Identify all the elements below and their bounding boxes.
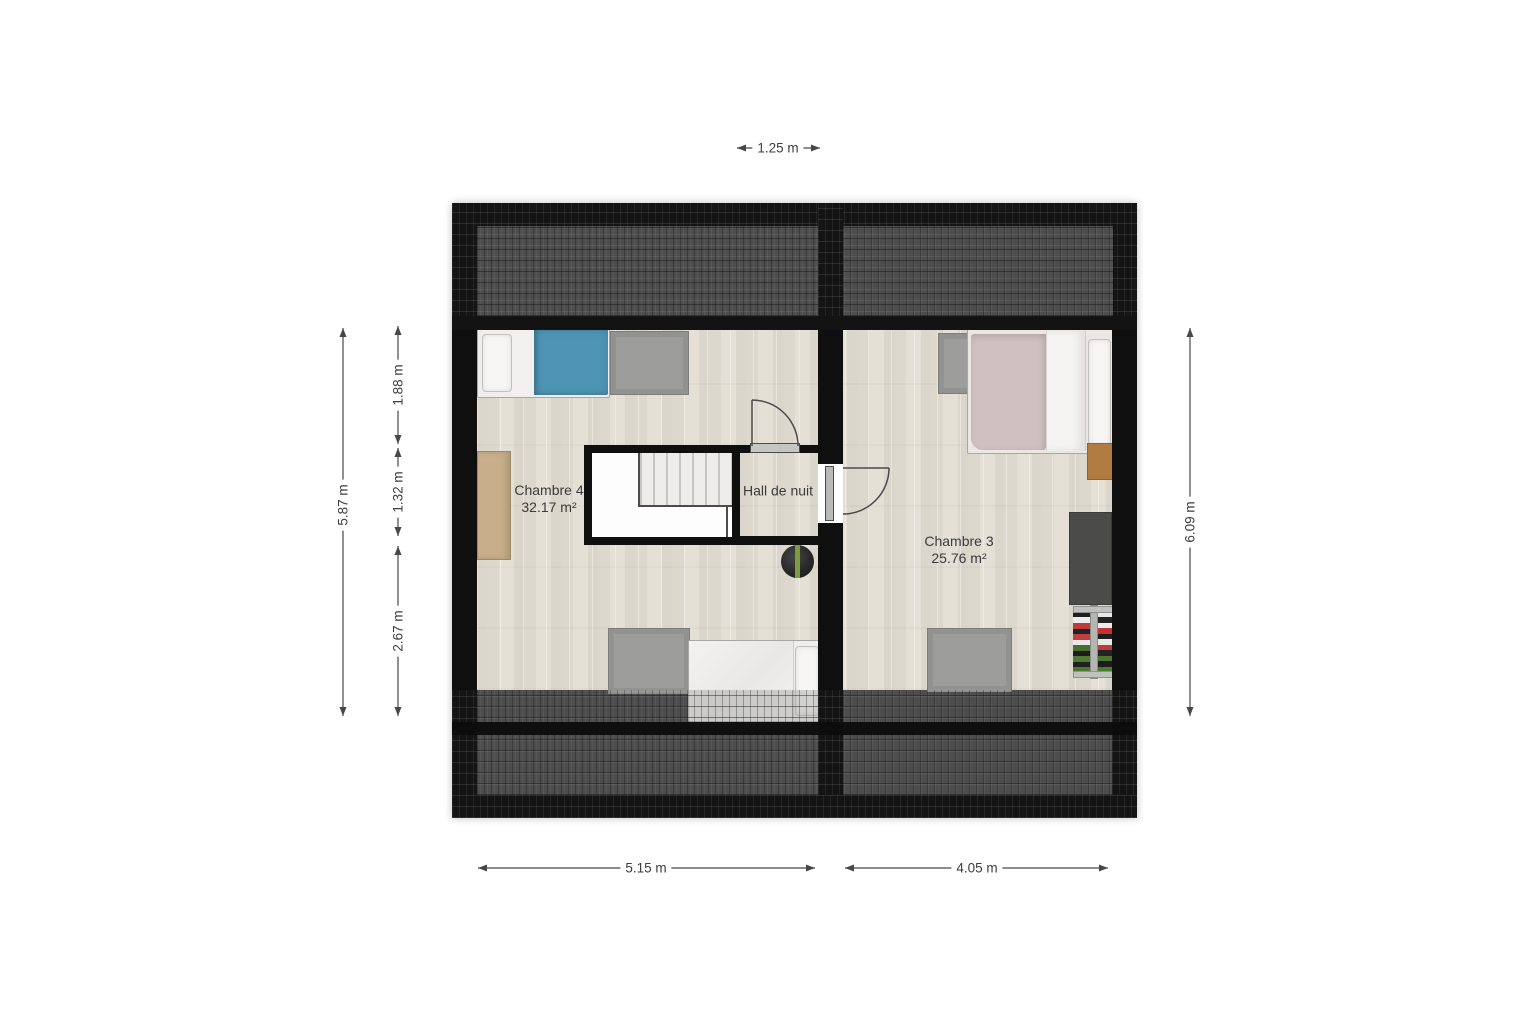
room-area: 25.76 m² bbox=[924, 550, 993, 567]
dim-label-left-total: 5.87 m bbox=[336, 479, 351, 530]
bed-sheet bbox=[512, 329, 535, 395]
dim-label-left-seg3: 2.67 m bbox=[391, 605, 406, 656]
rug bbox=[927, 628, 1012, 692]
room-name: Chambre 3 bbox=[924, 533, 993, 550]
double-bed bbox=[967, 328, 1115, 454]
roof-slope-overlay bbox=[477, 226, 818, 316]
dim-label-bottom-right: 4.05 m bbox=[951, 861, 1002, 876]
rug bbox=[610, 331, 689, 395]
wall-middle-lower bbox=[818, 521, 843, 690]
roof-eave-bottom bbox=[452, 795, 1137, 818]
dim-label-top: 1.25 m bbox=[752, 141, 803, 156]
single-bed-blue bbox=[477, 328, 610, 398]
mauve-blanket bbox=[971, 334, 1046, 450]
room-label-chambre3: Chambre 3 25.76 m² bbox=[924, 533, 993, 567]
desk bbox=[1069, 512, 1112, 605]
floor-plan-canvas: Chambre 4 32.17 m² Hall de nuit Chambre … bbox=[0, 0, 1536, 1022]
stair-treads bbox=[638, 453, 732, 507]
folded-duvet bbox=[1046, 331, 1086, 451]
roof-slope-overlay bbox=[477, 690, 818, 795]
plant-leaf bbox=[795, 545, 800, 578]
nightstand bbox=[1087, 443, 1115, 480]
clothes-rack bbox=[1073, 605, 1113, 677]
room-name: Chambre 4 bbox=[514, 482, 583, 499]
room-label-chambre4: Chambre 4 32.17 m² bbox=[514, 482, 583, 516]
rack-rail bbox=[1090, 605, 1098, 679]
rug bbox=[608, 628, 690, 694]
rack-bar-bottom bbox=[1073, 671, 1115, 678]
clothes-left bbox=[1073, 611, 1091, 673]
blue-blanket bbox=[534, 329, 608, 395]
rack-bar-top bbox=[1073, 606, 1115, 613]
round-side-table bbox=[781, 545, 814, 578]
room-name: Hall de nuit bbox=[743, 483, 813, 500]
wall-left bbox=[452, 330, 477, 690]
dim-label-right: 6.09 m bbox=[1183, 496, 1198, 547]
pillow bbox=[482, 334, 512, 392]
wall-hall-top-right bbox=[800, 445, 843, 453]
door-threshold-chambre4 bbox=[750, 443, 800, 453]
wardrobe bbox=[477, 451, 511, 560]
dim-label-left-seg2: 1.32 m bbox=[391, 466, 406, 517]
room-area: 32.17 m² bbox=[514, 499, 583, 516]
knee-wall-top bbox=[452, 316, 1137, 330]
dim-label-bottom-left: 5.15 m bbox=[620, 861, 671, 876]
roof-ridge-strip bbox=[818, 203, 843, 330]
door-leaf-chambre3 bbox=[825, 466, 834, 521]
dim-label-left-seg1: 1.88 m bbox=[391, 359, 406, 410]
roof-slope-overlay bbox=[843, 226, 1113, 316]
stair-landing-edge bbox=[726, 507, 728, 537]
wall-right bbox=[1112, 330, 1137, 690]
roof-slope-overlay bbox=[843, 690, 1112, 795]
knee-wall-bottom bbox=[452, 722, 1137, 735]
pillow bbox=[1088, 339, 1111, 445]
room-label-hall: Hall de nuit bbox=[743, 483, 813, 500]
